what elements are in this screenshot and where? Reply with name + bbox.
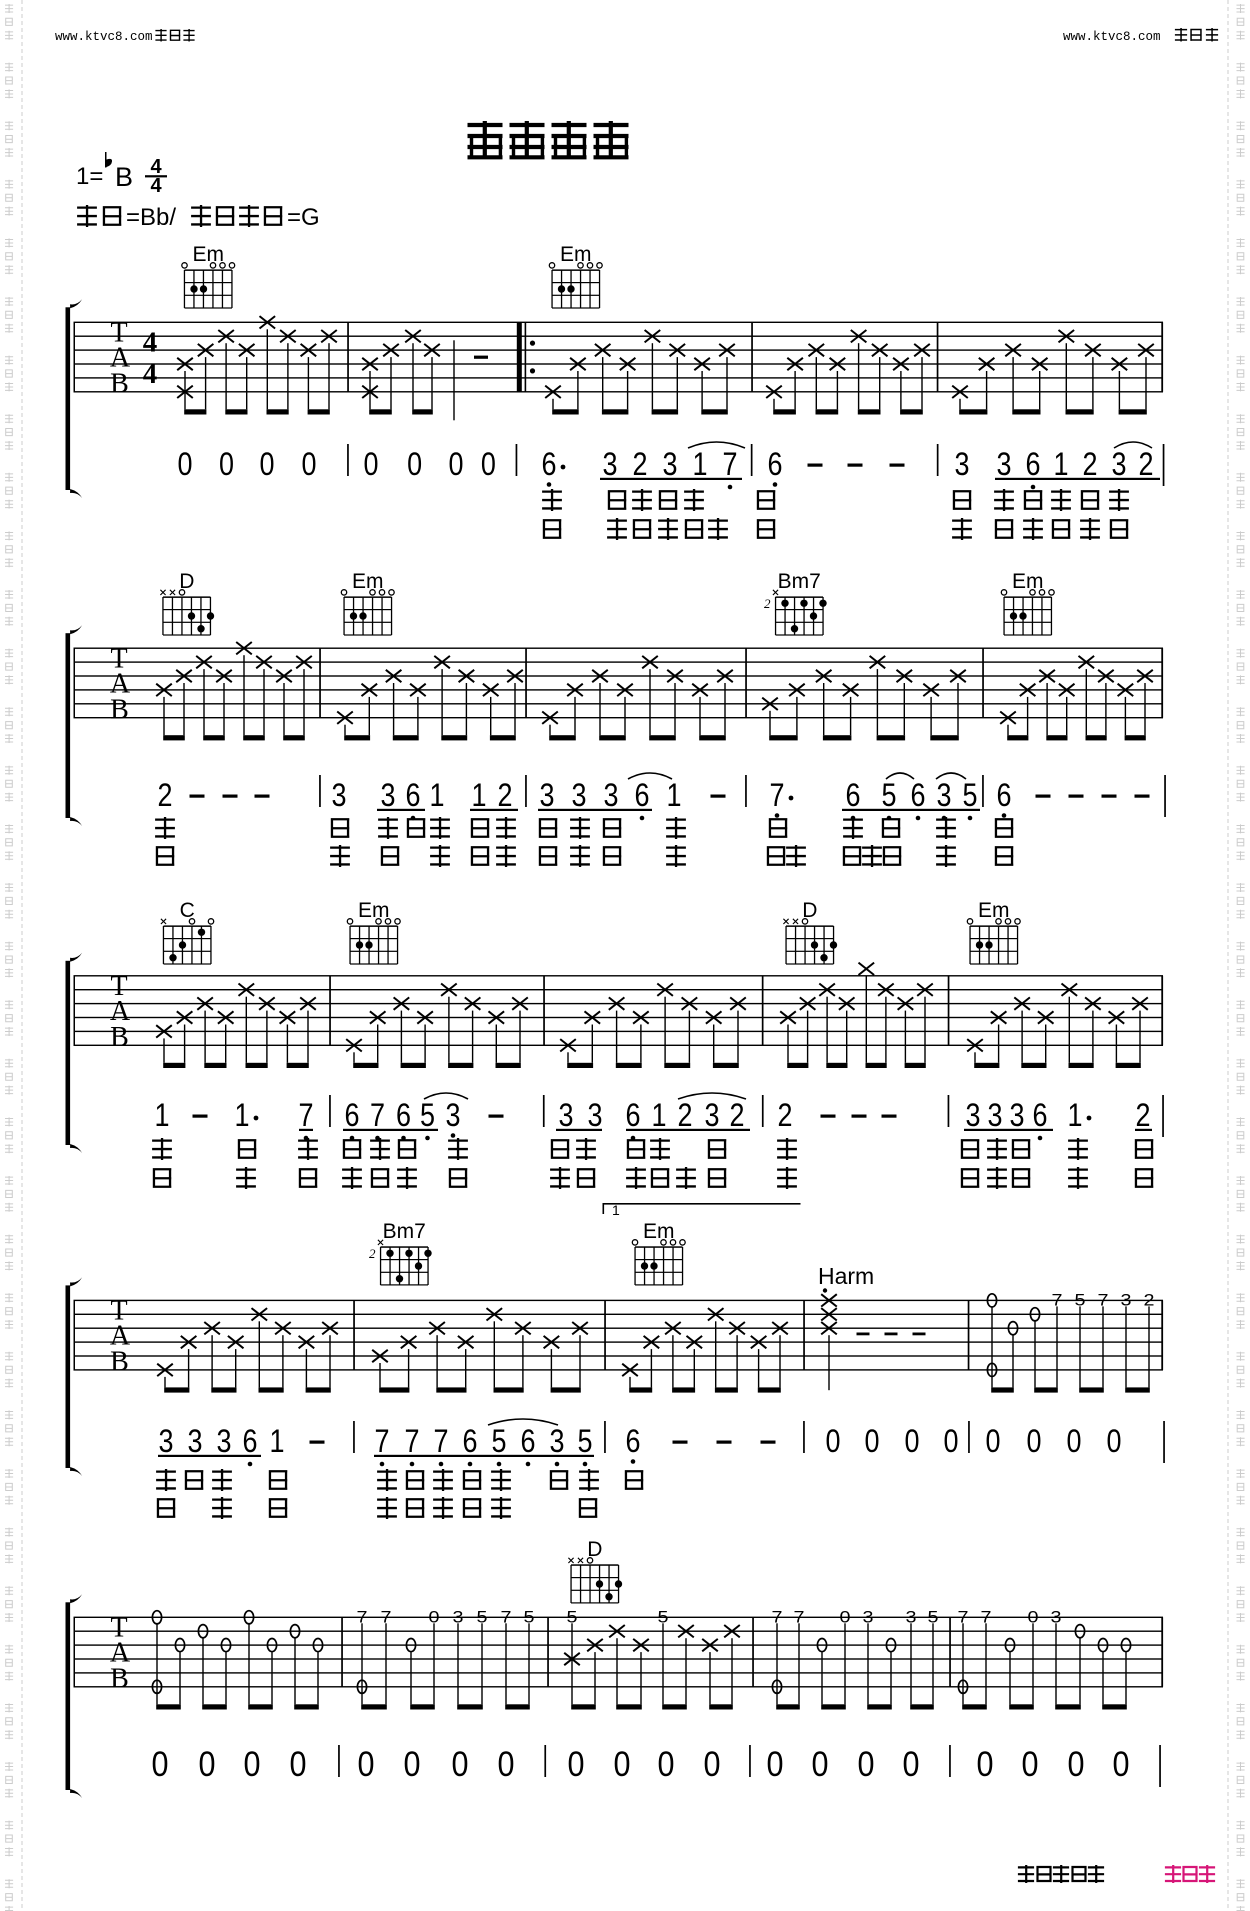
svg-text:3: 3 [997,446,1012,482]
svg-text:3: 3 [663,446,678,482]
svg-text:0: 0 [481,446,496,482]
svg-text:5: 5 [492,1423,507,1459]
svg-text:6: 6 [1026,446,1041,482]
svg-text:5: 5 [420,1097,435,1133]
svg-text:3: 3 [550,1423,565,1459]
svg-text:2: 2 [369,1246,376,1261]
svg-text:0: 0 [1113,1745,1130,1784]
svg-text:1: 1 [693,446,708,482]
svg-text:7: 7 [370,1097,385,1133]
svg-text:0: 0 [152,1745,169,1784]
svg-text:Em: Em [643,1220,675,1243]
svg-text:Em: Em [192,243,224,266]
svg-text:3: 3 [1112,446,1127,482]
svg-text:5: 5 [963,777,978,813]
svg-text:0: 0 [178,446,193,482]
svg-text:6: 6 [997,777,1012,813]
svg-text:6: 6 [768,446,783,482]
svg-text:2: 2 [1083,446,1098,482]
svg-text:Em: Em [978,899,1010,922]
svg-text:Em: Em [358,899,390,922]
svg-text:1=: 1= [76,163,103,190]
svg-text:B: B [110,694,129,725]
svg-text:3: 3 [559,1097,574,1133]
svg-text:Em: Em [1012,570,1044,593]
svg-text:0: 0 [244,1745,261,1784]
svg-text:6: 6 [1033,1097,1048,1133]
svg-text:1: 1 [612,1202,620,1218]
svg-text:6: 6 [396,1097,411,1133]
svg-text:0: 0 [219,446,234,482]
svg-text:0: 0 [290,1745,307,1784]
svg-text:0: 0 [944,1423,959,1459]
svg-text:0: 0 [812,1745,829,1784]
svg-text:6: 6 [243,1423,258,1459]
svg-text:0: 0 [404,1745,421,1784]
svg-text:6: 6 [626,1097,641,1133]
svg-text:3: 3 [988,1097,1003,1133]
svg-text:6: 6 [463,1423,478,1459]
svg-text:6: 6 [521,1423,536,1459]
svg-text:3: 3 [446,1097,461,1133]
svg-text:0: 0 [905,1423,920,1459]
svg-text:6: 6 [635,777,650,813]
svg-text:0: 0 [1027,1423,1042,1459]
svg-text:Em: Em [352,570,384,593]
svg-text:6: 6 [345,1097,360,1133]
svg-text:3: 3 [381,777,396,813]
svg-text:Harm: Harm [818,1263,874,1289]
svg-text:0: 0 [449,446,464,482]
svg-text:0: 0 [865,1423,880,1459]
svg-text:4: 4 [150,175,162,197]
svg-text:0: 0 [977,1745,994,1784]
svg-text:1: 1 [667,777,682,813]
svg-text:4: 4 [143,326,158,358]
svg-text:6: 6 [846,777,861,813]
svg-text:2: 2 [678,1097,693,1133]
svg-text:3: 3 [705,1097,720,1133]
svg-text:B: B [110,1664,129,1695]
svg-text:3: 3 [332,777,347,813]
svg-text:0: 0 [1067,1423,1082,1459]
svg-text:2: 2 [498,777,513,813]
svg-text:0: 0 [260,446,275,482]
svg-text:B: B [110,369,129,400]
svg-text:3: 3 [540,777,555,813]
svg-text:0: 0 [704,1745,721,1784]
svg-text:=Bb/: =Bb/ [126,204,176,231]
svg-text:3: 3 [188,1423,203,1459]
svg-text:7: 7 [434,1423,449,1459]
svg-text:0: 0 [986,1423,1001,1459]
svg-text:3: 3 [966,1097,981,1133]
svg-text:=G: =G [287,204,320,231]
svg-text:6: 6 [626,1423,641,1459]
svg-text:1: 1 [1054,446,1069,482]
svg-text:Em: Em [560,243,592,266]
svg-text:Bm7: Bm7 [383,1220,426,1243]
svg-text:2: 2 [730,1097,745,1133]
svg-text:0: 0 [1107,1423,1122,1459]
svg-text:0: 0 [1022,1745,1039,1784]
svg-text:2: 2 [778,1097,793,1133]
svg-text:2: 2 [633,446,648,482]
svg-text:1: 1 [270,1423,285,1459]
svg-text:3: 3 [604,777,619,813]
svg-text:6: 6 [406,777,421,813]
svg-text:3: 3 [588,1097,603,1133]
svg-text:2: 2 [764,596,771,611]
svg-text:5: 5 [578,1423,593,1459]
svg-text:0: 0 [568,1745,585,1784]
svg-text:0: 0 [452,1745,469,1784]
svg-text:6: 6 [542,446,557,482]
svg-text:B: B [110,1347,129,1378]
svg-text:0: 0 [358,1745,375,1784]
svg-text:www.ktvc8.com: www.ktvc8.com [1063,30,1161,44]
svg-text:0: 0 [826,1423,841,1459]
svg-text:3: 3 [217,1423,232,1459]
svg-text:www.ktvc8.com: www.ktvc8.com [55,30,153,44]
svg-text:1: 1 [1068,1097,1083,1133]
svg-text:1: 1 [155,1097,170,1133]
svg-text:3: 3 [572,777,587,813]
svg-text:7: 7 [770,777,785,813]
svg-text:6: 6 [911,777,926,813]
svg-text:7: 7 [723,446,738,482]
svg-text:1: 1 [430,777,445,813]
svg-text:B: B [110,1022,129,1053]
svg-text:5: 5 [882,777,897,813]
svg-text:0: 0 [407,446,422,482]
svg-text:2: 2 [1139,446,1154,482]
svg-text:7: 7 [375,1423,390,1459]
svg-text:0: 0 [658,1745,675,1784]
svg-text:7: 7 [405,1423,420,1459]
svg-text:B: B [115,162,133,192]
svg-text:0: 0 [614,1745,631,1784]
svg-text:0: 0 [903,1745,920,1784]
svg-text:0: 0 [1068,1745,1085,1784]
svg-text:7: 7 [299,1097,314,1133]
svg-text:3: 3 [955,446,970,482]
svg-text:0: 0 [199,1745,216,1784]
svg-text:4: 4 [143,358,158,390]
svg-text:0: 0 [858,1745,875,1784]
svg-text:1: 1 [652,1097,667,1133]
svg-text:3: 3 [159,1423,174,1459]
svg-text:2: 2 [158,777,173,813]
svg-text:0: 0 [498,1745,515,1784]
svg-text:1: 1 [472,777,487,813]
svg-text:3: 3 [937,777,952,813]
svg-text:Bm7: Bm7 [778,570,821,593]
svg-text:0: 0 [767,1745,784,1784]
svg-text:0: 0 [302,446,317,482]
svg-text:0: 0 [364,446,379,482]
svg-text:3: 3 [1010,1097,1025,1133]
svg-text:2: 2 [1136,1097,1151,1133]
svg-text:3: 3 [603,446,618,482]
svg-text:1: 1 [235,1097,250,1133]
